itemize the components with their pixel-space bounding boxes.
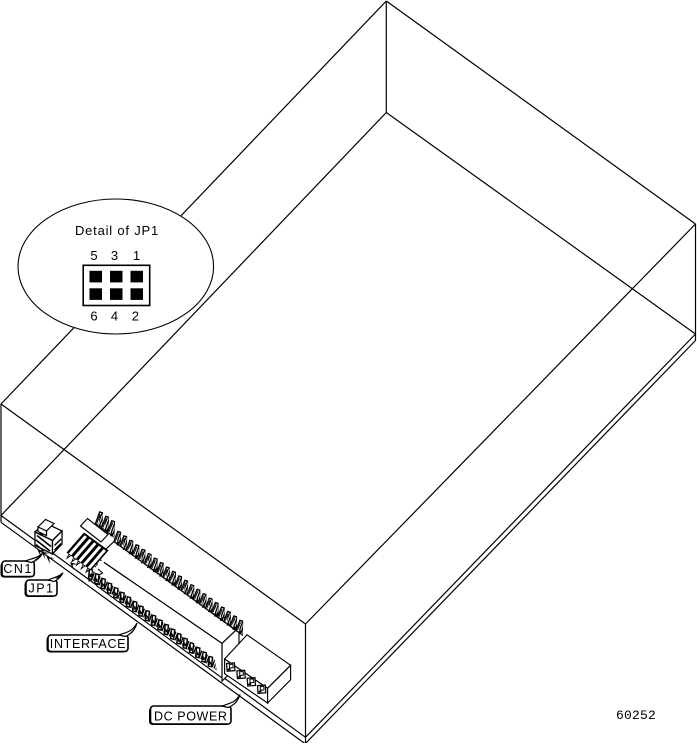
- svg-text:JP1: JP1: [28, 582, 54, 596]
- svg-text:INTERFACE: INTERFACE: [50, 637, 126, 651]
- svg-text:4: 4: [111, 309, 118, 324]
- svg-text:60252: 60252: [616, 708, 656, 723]
- svg-text:CN1: CN1: [3, 562, 33, 576]
- svg-text:Detail of JP1: Detail of JP1: [75, 223, 159, 238]
- svg-text:1: 1: [133, 248, 140, 263]
- svg-text:3: 3: [111, 248, 118, 263]
- svg-text:5: 5: [90, 248, 97, 263]
- svg-text:2: 2: [132, 309, 139, 324]
- svg-text:6: 6: [90, 309, 97, 324]
- svg-text:DC POWER: DC POWER: [154, 710, 228, 724]
